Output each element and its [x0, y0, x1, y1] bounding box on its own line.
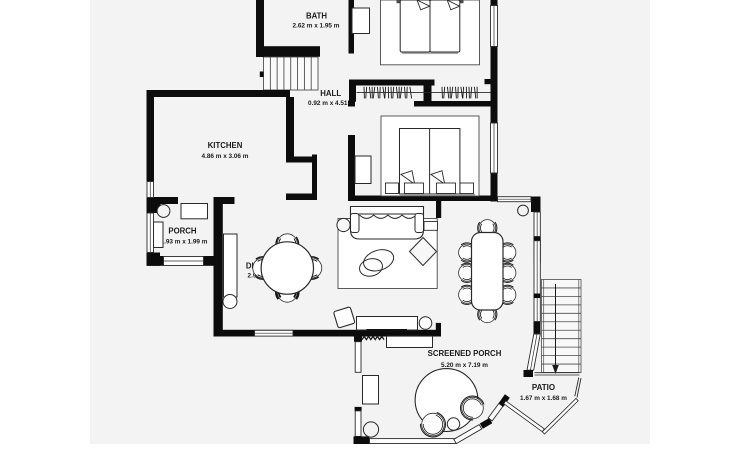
svg-text:PORCH: PORCH	[168, 226, 197, 235]
svg-text:BATH: BATH	[306, 11, 327, 20]
svg-text:PATIO: PATIO	[532, 383, 555, 392]
svg-text:HALL: HALL	[320, 89, 341, 98]
svg-text:1.67 m x 1.68 m: 1.67 m x 1.68 m	[520, 395, 567, 402]
svg-text:1.93 m x 1.99 m: 1.93 m x 1.99 m	[161, 239, 208, 246]
svg-text:5.20 m x 7.19 m: 5.20 m x 7.19 m	[441, 362, 488, 369]
svg-text:2.62 m x 1.95 m: 2.62 m x 1.95 m	[293, 22, 340, 29]
svg-text:4.86 m x 3.06 m: 4.86 m x 3.06 m	[202, 153, 249, 160]
svg-text:SCREENED PORCH: SCREENED PORCH	[428, 349, 502, 358]
svg-text:KITCHEN: KITCHEN	[208, 141, 243, 150]
